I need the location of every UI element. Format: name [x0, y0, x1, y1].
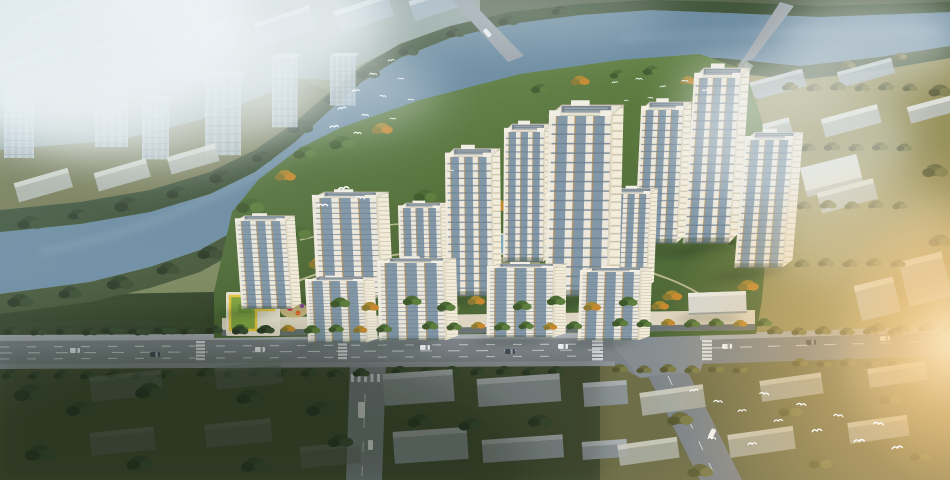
atmosphere — [0, 0, 950, 480]
rendering-canvas — [0, 0, 950, 480]
aerial-rendering — [0, 0, 950, 480]
color-grade — [0, 0, 950, 480]
